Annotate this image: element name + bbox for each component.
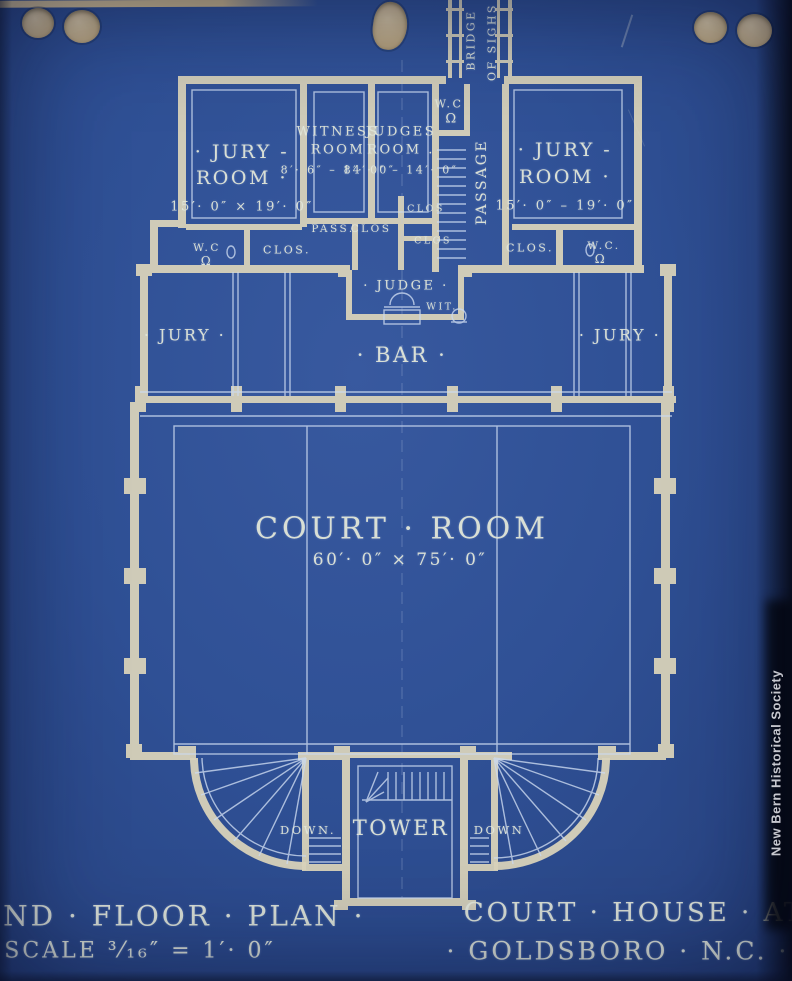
punch-hole [737, 14, 772, 47]
court-room-label: COURT · ROOM [255, 512, 549, 547]
judges-room-label-line2: ROOM . [367, 143, 435, 158]
witness-stand-label: WIT. [426, 302, 457, 313]
bridge-of-sighs-label-line2: OF SIGHS [486, 3, 499, 81]
punch-hole [694, 12, 727, 43]
photo-edge-shadow [0, 971, 792, 981]
toilet-icon: Ω [445, 112, 458, 127]
project-title-line2: · GOLDSBORO · N.C. · [447, 937, 790, 966]
down-left-label: DOWN. [280, 823, 336, 837]
toilet-icon: Ω [595, 252, 607, 266]
wc-top-label: W.C [435, 98, 464, 111]
jury-room-right-label-line1: · JURY - [518, 139, 612, 161]
court-room-dims: 60′· 0″ × 75′· 0″ [313, 550, 487, 570]
wc-left-label: W.C [193, 242, 221, 254]
stair-bay-walls [194, 758, 606, 866]
project-title-line1: COURT · HOUSE · AT [464, 898, 792, 928]
plan-title-line1: · 2ND · FLOOR · PLAN · [0, 900, 365, 933]
photo-edge-shadow [0, 0, 12, 981]
judges-room-label-line1: JUDGES [366, 125, 436, 140]
archive-watermark: New Bern Historical Society [769, 670, 784, 856]
closet-center2-label: CLOS [407, 204, 445, 215]
closet-center3-label: CLOS [414, 236, 452, 247]
closet-left-label: CLOS. [263, 244, 311, 257]
down-right-label: DOWN [474, 823, 525, 837]
closet-center1-label: CLOS [351, 223, 392, 235]
closet-right-label: CLOS. [506, 242, 554, 255]
jury-box-left-label: · JURY · [144, 326, 226, 345]
passage-label: PASSAGE [474, 139, 490, 225]
punch-hole [64, 10, 100, 43]
wc-right-label: W.C. [587, 240, 620, 252]
jury-room-right-label-line2: ROOM · [519, 166, 611, 188]
blueprint-page: BRIDGE OF SIGHS W.C Ω · JURY - ROOM · 15… [0, 0, 792, 981]
jury-box-right-label: · JURY · [579, 326, 661, 345]
jury-room-left-label-line1: · JURY - [195, 141, 289, 163]
jury-room-left-dims: 15′· 0″ × 19′· 0″ [170, 200, 313, 215]
judges-room-dims: 8′· 0″ – 14′· 0″ [344, 164, 459, 177]
bar-label: · BAR · [357, 343, 448, 367]
pass-small-label: PASS. [311, 223, 354, 235]
bridge-of-sighs-label-line1: BRIDGE [465, 9, 478, 70]
plan-scale: SCALE ³⁄₁₆″ = 1′· 0″ [4, 939, 275, 964]
toilet-icon: Ω [201, 254, 213, 268]
judge-label: · JUDGE · [363, 279, 449, 294]
punch-hole [22, 8, 54, 38]
jury-room-left-label-line2: ROOM · [196, 167, 288, 189]
jury-room-right-dims: 15′· 0″ – 19′· 0″ [495, 199, 634, 214]
tower-label: TOWER [353, 816, 449, 840]
witness-room-label-line2: ROOM [311, 143, 365, 158]
